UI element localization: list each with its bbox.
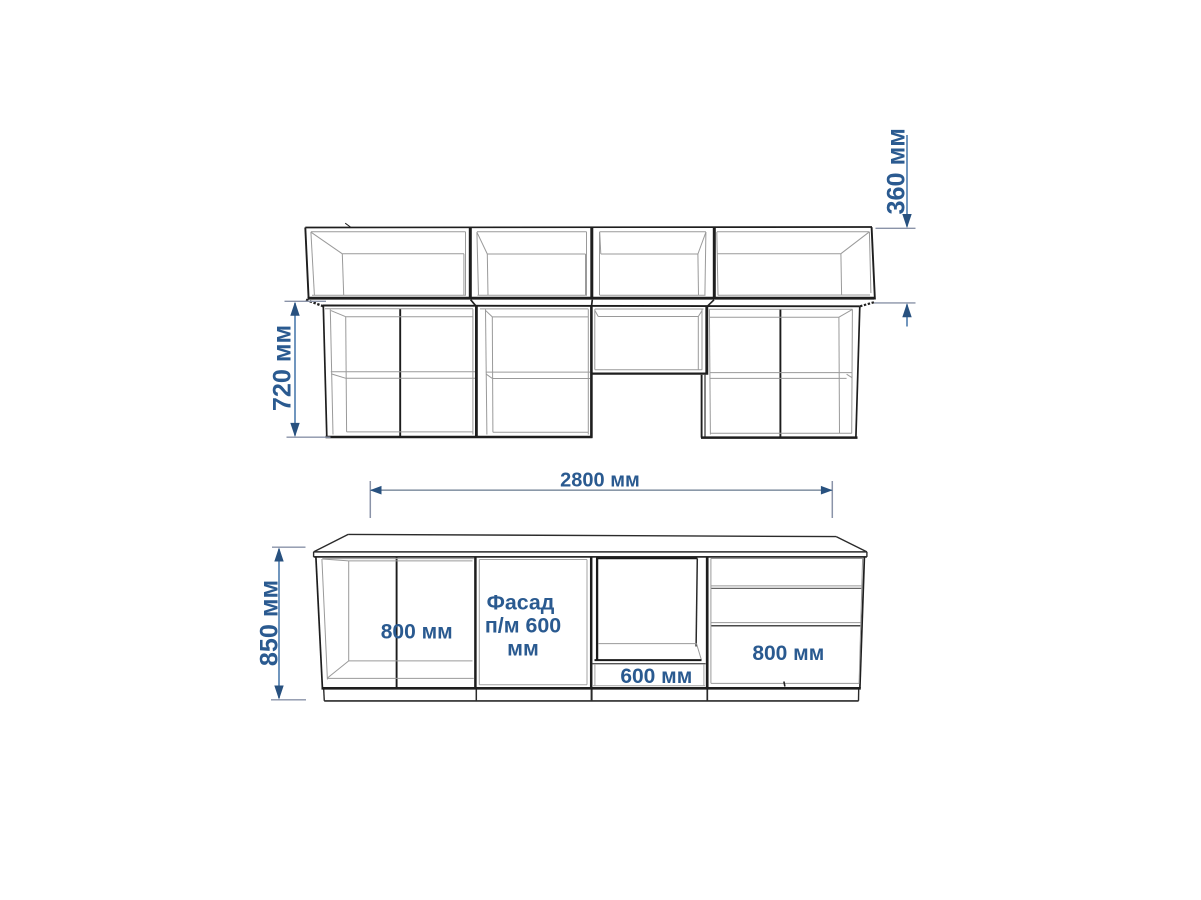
svg-text:360 мм: 360 мм [882, 128, 910, 214]
svg-text:850 мм: 850 мм [255, 580, 283, 666]
svg-text:800 мм: 800 мм [752, 642, 824, 665]
svg-text:мм: мм [507, 637, 539, 661]
svg-text:2800 мм: 2800 мм [560, 470, 640, 492]
svg-text:Фасад: Фасад [487, 590, 555, 614]
svg-text:600 мм: 600 мм [620, 665, 692, 688]
svg-text:п/м 600: п/м 600 [485, 614, 561, 638]
svg-text:720 мм: 720 мм [268, 325, 296, 411]
svg-text:800 мм: 800 мм [381, 621, 453, 644]
